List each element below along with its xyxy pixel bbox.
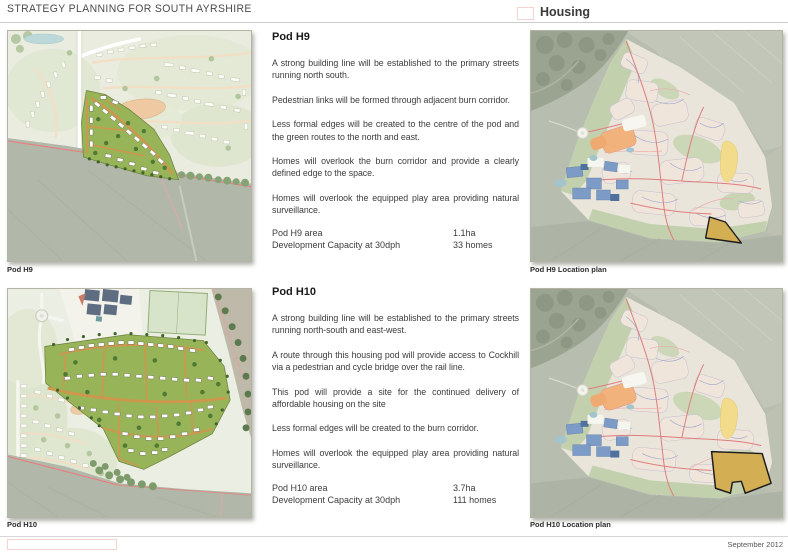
footer-date: September 2012 — [728, 540, 783, 549]
pod-h9-location-caption: Pod H9 Location plan — [530, 265, 607, 274]
stat-row: Development Capacity at 30dph 111 homes — [272, 494, 519, 506]
stat-label: Pod H9 area — [272, 227, 453, 239]
section-label: Housing — [540, 5, 590, 19]
pod-h9-heading: Pod H9 — [272, 31, 519, 43]
pod-h9-paragraph: Less formal edges will be created to the… — [272, 118, 519, 143]
pod-h9-map-caption: Pod H9 — [7, 265, 33, 274]
stat-value: 111 homes — [453, 494, 496, 506]
pod-h10-location-plan-map — [530, 288, 783, 518]
pod-h10-paragraph: Homes will overlook the equipped play ar… — [272, 447, 519, 472]
pod-h10-paragraph: A strong building line will be establish… — [272, 312, 519, 337]
stat-label: Pod H10 area — [272, 482, 453, 494]
footer-box-icon — [7, 539, 117, 550]
pod-h9-paragraph: Homes will overlook the equipped play ar… — [272, 192, 519, 217]
stat-value: 1.1ha — [453, 227, 476, 239]
stat-value: 3.7ha — [453, 482, 476, 494]
pod-h10-paragraph: A route through this housing pod will pr… — [272, 349, 519, 374]
pod-h9-location-plan-map — [530, 30, 783, 262]
stat-row: Pod H10 area 3.7ha — [272, 482, 519, 494]
pod-h9-paragraph: Pedestrian links will be formed through … — [272, 94, 519, 106]
pod-h10-location-caption: Pod H10 Location plan — [530, 520, 611, 529]
stat-value: 33 homes — [453, 239, 493, 251]
footer-divider — [0, 536, 788, 537]
pod-h9-text-column: Pod H9 A strong building line will be es… — [272, 31, 519, 251]
stat-row: Development Capacity at 30dph 33 homes — [272, 239, 519, 251]
pod-h9-paragraph: A strong building line will be establish… — [272, 57, 519, 82]
stat-row: Pod H9 area 1.1ha — [272, 227, 519, 239]
header-divider — [0, 22, 788, 23]
pod-h10-stats: Pod H10 area 3.7ha Development Capacity … — [272, 482, 519, 506]
pod-h10-paragraph: Less formal edges will be created to the… — [272, 422, 519, 434]
pod-h10-masterplan-map — [7, 288, 252, 518]
pod-h10-heading: Pod H10 — [272, 286, 519, 298]
stat-label: Development Capacity at 30dph — [272, 494, 453, 506]
pod-h10-map-caption: Pod H10 — [7, 520, 37, 529]
pod-h9-paragraph: Homes will overlook the burn corridor an… — [272, 155, 519, 180]
pod-h10-paragraph: This pod will provide a site for the con… — [272, 386, 519, 411]
page-title: STRATEGY PLANNING FOR SOUTH AYRSHIRE — [7, 3, 252, 15]
pod-h9-stats: Pod H9 area 1.1ha Development Capacity a… — [272, 227, 519, 251]
housing-section-box-icon — [517, 7, 534, 20]
stat-label: Development Capacity at 30dph — [272, 239, 453, 251]
pod-h9-masterplan-map — [7, 30, 252, 262]
pod-h10-text-column: Pod H10 A strong building line will be e… — [272, 286, 519, 506]
